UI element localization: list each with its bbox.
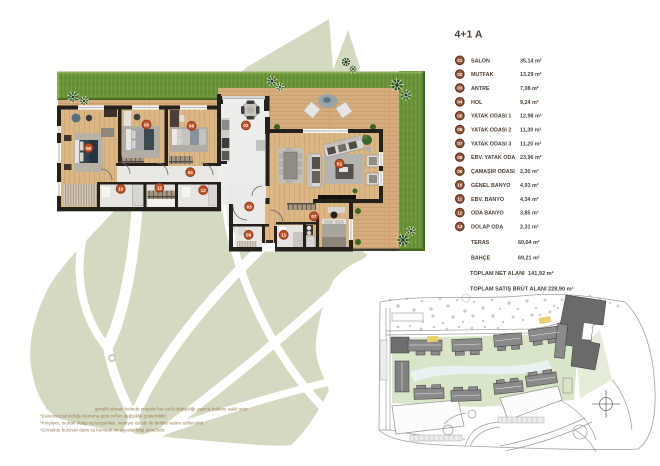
svg-text:4+1 A: 4+1 A [455,29,483,41]
svg-text:35,14 m²: 35,14 m² [520,58,542,64]
svg-text:BAHÇE: BAHÇE [471,256,491,262]
svg-text:ODA BANYO: ODA BANYO [471,211,504,217]
svg-text:03: 03 [247,204,253,209]
svg-text:69,21 m²: 69,21 m² [518,256,540,262]
svg-text:06: 06 [457,127,463,132]
svg-text:2,30 m²: 2,30 m² [520,169,539,175]
svg-text:MUTFAK: MUTFAK [471,72,494,78]
svg-text:10: 10 [118,187,124,192]
svg-text:09: 09 [457,169,463,174]
svg-text:03: 03 [457,86,463,91]
svg-text:04: 04 [188,170,194,175]
svg-text:07: 07 [311,214,317,219]
svg-text:3,85 m²: 3,85 m² [520,211,539,217]
svg-text:09: 09 [246,233,252,238]
svg-text:*Kirişliyer, mutfak dolap ve t: *Kirişliyer, mutfak dolap ve tezgahları,… [40,421,204,426]
svg-text:4,34 m²: 4,34 m² [520,197,539,203]
svg-text:13: 13 [201,188,207,193]
svg-text:YATAK ODASI 2: YATAK ODASI 2 [471,128,511,134]
svg-text:12,98 m²: 12,98 m² [520,114,542,120]
svg-text:11: 11 [457,197,462,202]
svg-text:GENEL BANYO: GENEL BANYO [471,183,510,189]
svg-text:04: 04 [457,100,463,105]
svg-text:*Dairenin bulunduğu konuma gör: *Dairenin bulunduğu konuma göre m²'ler d… [40,414,167,419]
svg-text:11: 11 [281,233,286,238]
svg-text:TERAS: TERAS [471,240,490,246]
svg-text:4,93 m²: 4,93 m² [520,183,539,189]
svg-text:SALON: SALON [471,58,490,64]
svg-text:02: 02 [243,123,249,128]
svg-text:ÇAMAŞIR ODASI: ÇAMAŞIR ODASI [471,169,515,175]
svg-text:ANTRE: ANTRE [471,86,490,92]
svg-text:01: 01 [337,161,343,166]
svg-text:23,96 m²: 23,96 m² [520,155,542,161]
svg-text:EBV. BANYO: EBV. BANYO [471,197,504,203]
svg-text:HOL: HOL [471,100,483,106]
svg-text:11,20 m²: 11,20 m² [520,141,541,147]
svg-text:*Görselde bulunan daire içi ko: *Görselde bulunan daire içi konsept ve e… [40,428,165,433]
svg-text:01: 01 [457,58,463,63]
svg-text:EBV. YATAK ODA: EBV. YATAK ODA [471,155,515,161]
svg-text:05: 05 [457,113,463,118]
svg-text:2,31 m²: 2,31 m² [520,225,539,231]
svg-text:gerekli olması halinde projede: gerekli olması halinde projede her türlü… [95,407,249,412]
svg-text:07: 07 [457,141,463,146]
svg-text:9,24 m²: 9,24 m² [520,100,539,106]
svg-text:TOPLAM NET ALANI: TOPLAM NET ALANI [470,271,525,277]
svg-text:02: 02 [457,72,463,77]
svg-text:06: 06 [189,124,195,129]
svg-text:08: 08 [457,155,463,160]
svg-text:228,90 m²: 228,90 m² [548,286,574,293]
svg-text:YATAK ODASI 3: YATAK ODASI 3 [471,141,511,147]
svg-text:12: 12 [457,210,463,215]
svg-text:13,29 m²: 13,29 m² [520,72,542,78]
svg-text:08: 08 [86,146,92,151]
svg-text:10: 10 [457,183,463,188]
svg-text:12: 12 [157,185,163,190]
svg-text:TOPLAM SATIŞ BRÜT ALANI: TOPLAM SATIŞ BRÜT ALANI [470,286,547,293]
svg-text:DOLAP ODA: DOLAP ODA [471,225,503,231]
svg-text:60,04 m²: 60,04 m² [518,240,540,246]
svg-text:05: 05 [144,122,150,127]
svg-text:7,08 m²: 7,08 m² [520,86,539,92]
svg-text:11,30 m²: 11,30 m² [520,128,541,134]
svg-text:YATAK ODASI 1: YATAK ODASI 1 [471,114,511,120]
svg-text:13: 13 [457,224,463,229]
svg-text:141,92 m²: 141,92 m² [528,270,554,277]
